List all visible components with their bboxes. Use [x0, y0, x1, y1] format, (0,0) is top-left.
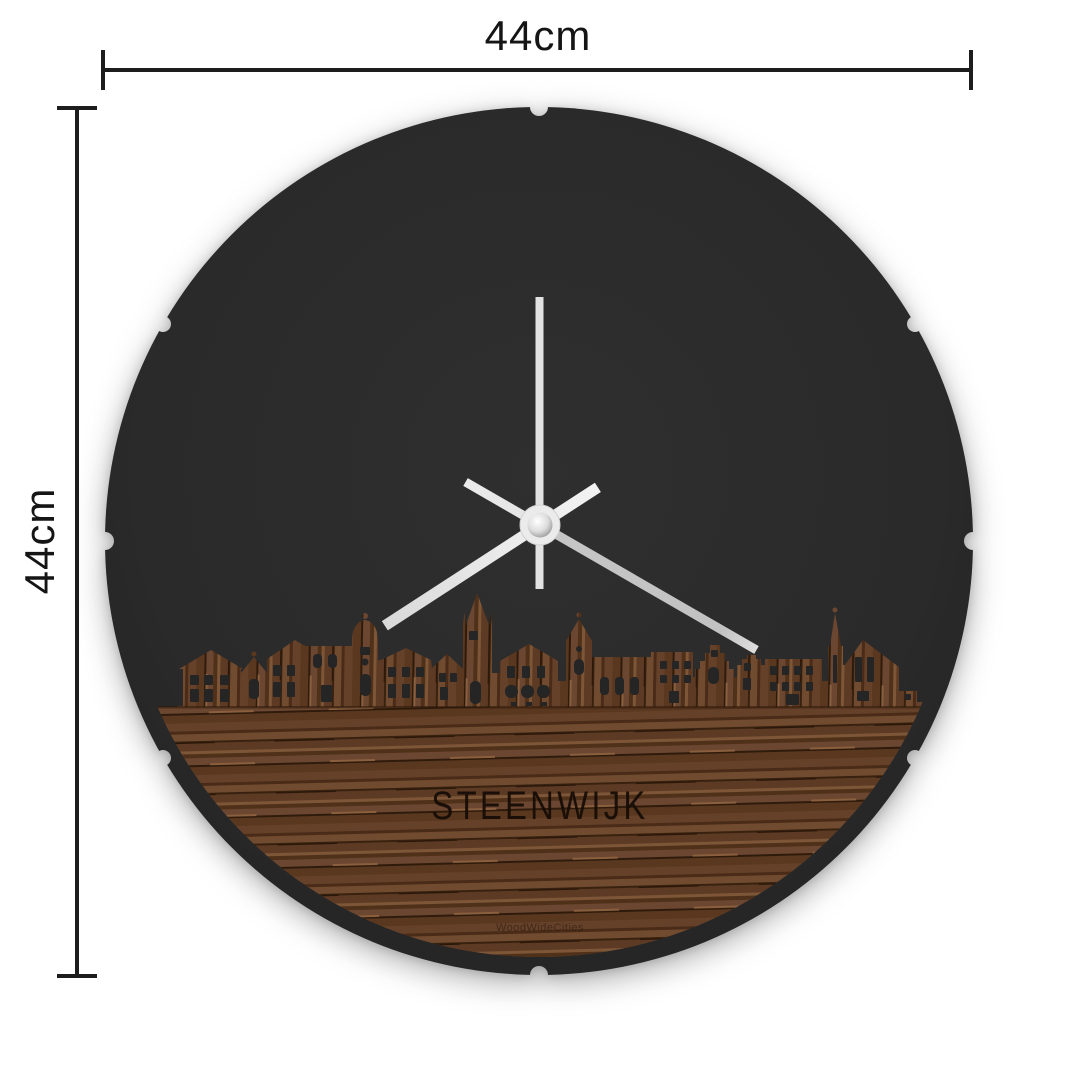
watermark-engraving: WoodWideCities [496, 922, 584, 934]
finial [577, 613, 582, 618]
city-name-engraving: STEENWIJK [431, 783, 648, 828]
clock-body: STEENWIJK WoodWideCities [100, 107, 980, 1017]
hand-hub-cap [528, 513, 553, 538]
ground-seam [120, 706, 960, 709]
wall-clock: STEENWIJK WoodWideCities [0, 0, 1080, 1080]
finial [252, 652, 257, 657]
finial [362, 613, 368, 619]
product-dimension-diagram: 44cm 44cm [0, 0, 1080, 1080]
finial [833, 608, 838, 613]
